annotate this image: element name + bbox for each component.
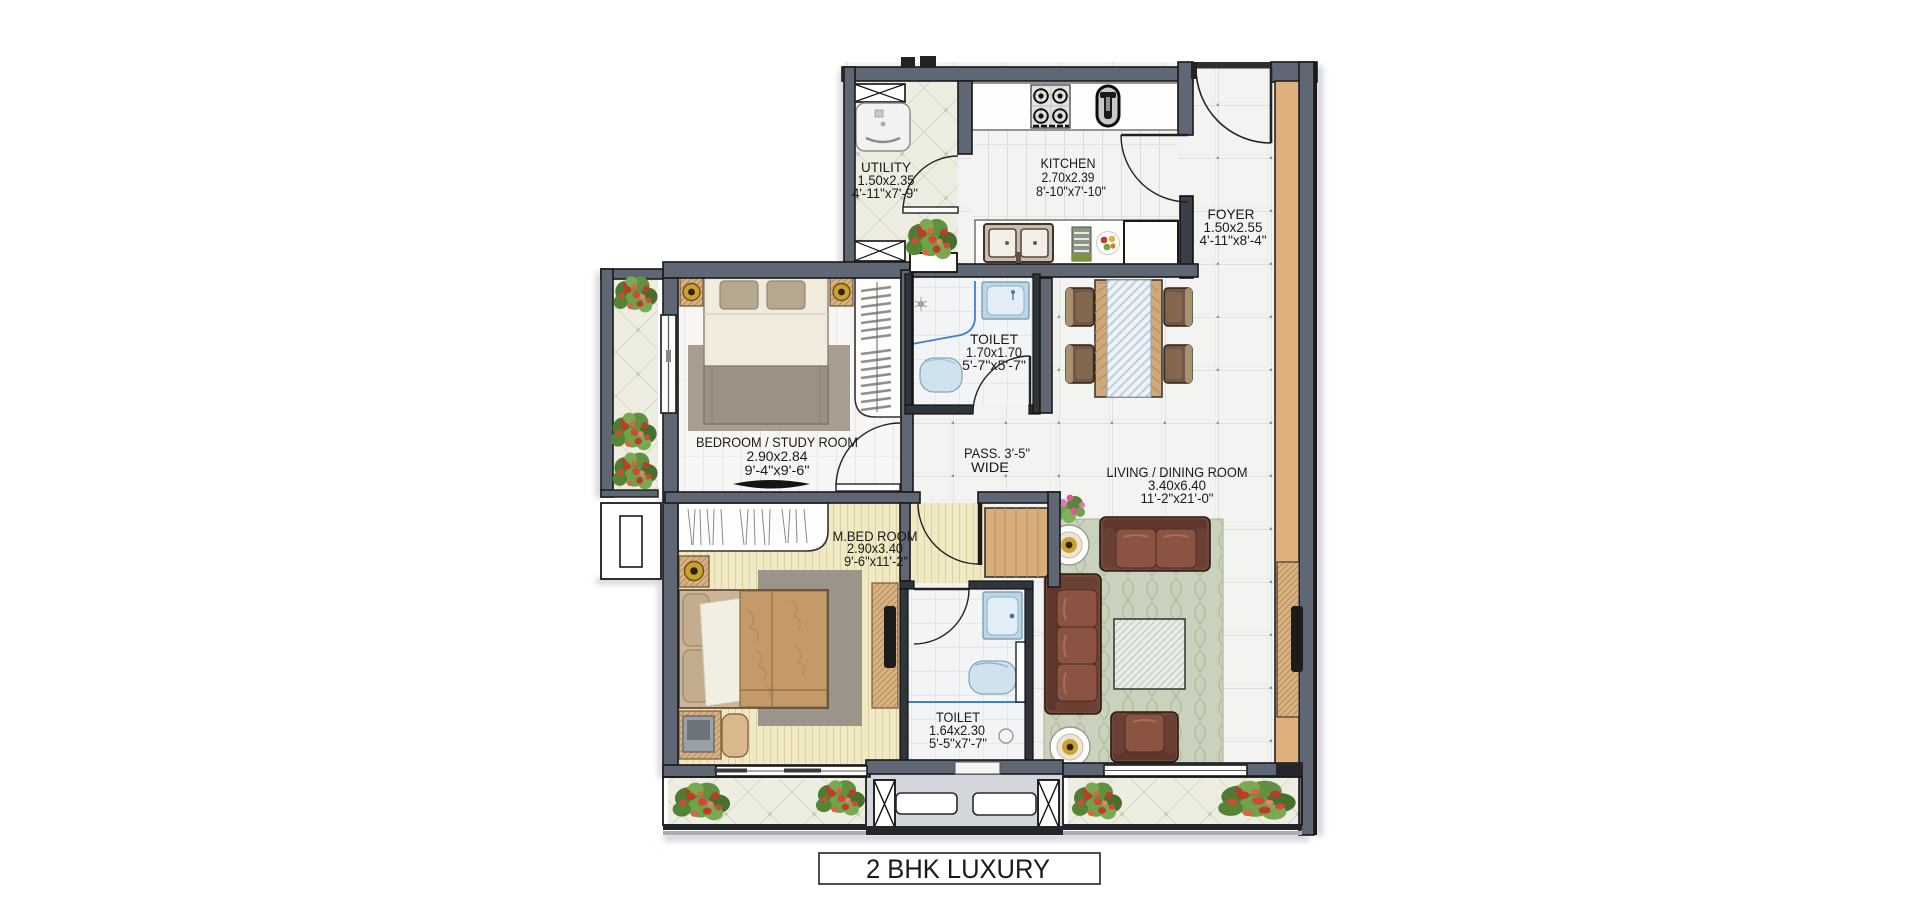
svg-text:9'-6"x11'-2": 9'-6"x11'-2" xyxy=(844,553,908,569)
svg-text:WIDE: WIDE xyxy=(971,459,1009,475)
svg-text:8'-10"x7'-10": 8'-10"x7'-10" xyxy=(1036,183,1106,199)
svg-text:5'-7"x5'-7": 5'-7"x5'-7" xyxy=(962,357,1026,373)
svg-text:11'-2"x21'-0": 11'-2"x21'-0" xyxy=(1141,490,1214,506)
svg-text:2 BHK LUXURY: 2 BHK LUXURY xyxy=(866,854,1050,884)
svg-text:9'-4"x9'-6": 9'-4"x9'-6" xyxy=(745,462,810,478)
svg-text:4'-11"x7'-9": 4'-11"x7'-9" xyxy=(852,185,918,201)
svg-text:5'-5"x7'-7": 5'-5"x7'-7" xyxy=(929,735,987,751)
svg-text:4'-11"x8'-4": 4'-11"x8'-4" xyxy=(1200,232,1267,248)
